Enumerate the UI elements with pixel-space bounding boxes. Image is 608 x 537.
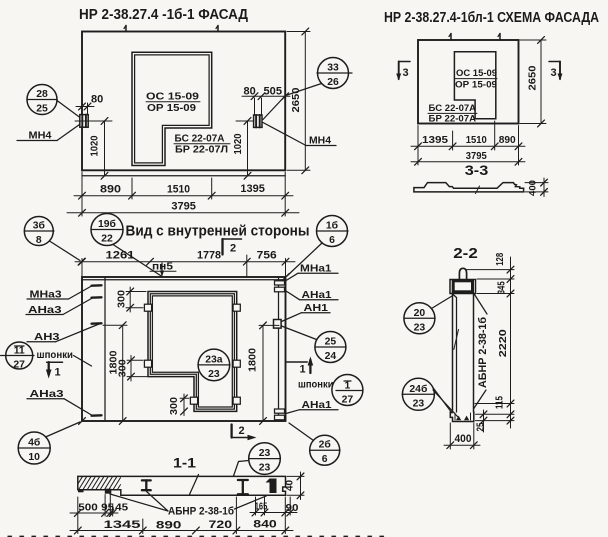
svg-text:890: 890 (100, 184, 121, 196)
svg-text:90: 90 (286, 502, 299, 514)
svg-text:400: 400 (528, 180, 538, 196)
svg-text:АБНР 2-38-1б: АБНР 2-38-1б (477, 317, 489, 388)
svg-text:115: 115 (494, 396, 506, 409)
svg-text:БР 22-07Л: БР 22-07Л (175, 145, 228, 156)
svg-text:1261: 1261 (106, 250, 135, 262)
svg-text:26: 26 (327, 77, 339, 88)
svg-text:840: 840 (253, 519, 277, 531)
svg-text:23: 23 (414, 322, 426, 333)
svg-text:ОР 15-09: ОР 15-09 (147, 103, 196, 114)
svg-text:1510: 1510 (167, 184, 190, 196)
svg-text:23: 23 (259, 448, 271, 459)
svg-text:2-2: 2-2 (453, 246, 478, 262)
svg-text:25: 25 (36, 104, 48, 115)
svg-text:23: 23 (259, 463, 271, 474)
svg-text:300: 300 (168, 397, 180, 415)
svg-text:1395: 1395 (422, 134, 448, 146)
svg-text:11: 11 (14, 346, 25, 357)
svg-text:1020: 1020 (89, 135, 101, 156)
svg-text:27: 27 (342, 395, 354, 406)
svg-text:95: 95 (101, 502, 114, 514)
svg-text:1395: 1395 (240, 183, 265, 195)
svg-text:БС 22-07А: БС 22-07А (175, 134, 225, 145)
svg-text:1: 1 (345, 381, 351, 392)
svg-text:24б: 24б (409, 383, 427, 395)
svg-text:8: 8 (36, 235, 42, 246)
svg-text:3795: 3795 (466, 150, 487, 162)
svg-text:165: 165 (255, 501, 268, 513)
svg-text:3-3: 3-3 (465, 163, 489, 178)
svg-text:2б: 2б (319, 439, 331, 451)
svg-text:22: 22 (101, 234, 113, 245)
svg-text:27: 27 (13, 360, 25, 371)
svg-text:33: 33 (327, 63, 339, 74)
svg-text:НР 2-38.27.4 -1б-1 ФАСАД: НР 2-38.27.4 -1б-1 ФАСАД (79, 7, 249, 23)
svg-text:23: 23 (208, 369, 220, 380)
svg-text:1020: 1020 (232, 133, 244, 154)
svg-text:3: 3 (402, 67, 408, 79)
svg-text:23: 23 (413, 398, 425, 409)
svg-text:1510: 1510 (466, 134, 487, 146)
svg-text:45: 45 (115, 502, 128, 514)
svg-text:128: 128 (494, 253, 506, 266)
svg-text:20: 20 (414, 308, 426, 319)
svg-text:890: 890 (156, 520, 182, 532)
svg-text:4б: 4б (28, 437, 40, 449)
svg-text:400: 400 (455, 433, 472, 445)
svg-text:10: 10 (28, 452, 40, 463)
svg-text:БС 22-07А: БС 22-07А (429, 103, 477, 113)
svg-text:МН4: МН4 (29, 131, 52, 142)
svg-text:1б: 1б (326, 220, 338, 232)
svg-text:БР 22-07А: БР 22-07А (429, 114, 477, 124)
svg-text:1-1: 1-1 (173, 456, 197, 471)
svg-text:шпонки: шпонки (37, 349, 74, 361)
svg-text:500: 500 (78, 502, 98, 514)
svg-text:МН4: МН4 (309, 136, 331, 147)
svg-text:19б: 19б (98, 218, 116, 230)
svg-text:1: 1 (299, 364, 305, 376)
svg-text:24: 24 (325, 351, 337, 362)
svg-text:6: 6 (329, 235, 335, 246)
svg-text:6: 6 (322, 454, 328, 465)
svg-text:1: 1 (54, 367, 60, 379)
svg-text:2650: 2650 (527, 65, 539, 90)
svg-text:3: 3 (550, 67, 556, 79)
svg-text:1800: 1800 (247, 348, 259, 372)
svg-text:2: 2 (230, 243, 236, 255)
svg-text:Вид с внутренней стороны: Вид с внутренней стороны (126, 224, 310, 240)
svg-text:300: 300 (116, 290, 128, 308)
svg-text:шпонки: шпонки (298, 379, 334, 391)
svg-text:2220: 2220 (497, 329, 509, 357)
svg-text:80: 80 (91, 94, 103, 106)
svg-text:890: 890 (499, 134, 516, 146)
svg-text:345: 345 (496, 281, 508, 294)
svg-text:ОС 15-09: ОС 15-09 (146, 92, 199, 103)
svg-text:25: 25 (325, 337, 337, 348)
svg-text:НР 2-38.27.4-1бл-1 СХЕМА ФАСАД: НР 2-38.27.4-1бл-1 СХЕМА ФАСАДА (384, 10, 599, 26)
svg-text:3795: 3795 (171, 201, 196, 213)
svg-text:23а: 23а (205, 355, 223, 366)
svg-text:756: 756 (257, 250, 277, 262)
svg-text:1345: 1345 (104, 519, 141, 531)
svg-text:2: 2 (238, 425, 244, 437)
svg-text:720: 720 (209, 519, 233, 531)
svg-text:АБНР 2-38-1б: АБНР 2-38-1б (168, 506, 234, 518)
svg-text:ОС 15-09: ОС 15-09 (456, 68, 497, 78)
svg-text:28: 28 (36, 89, 48, 100)
svg-text:1800: 1800 (108, 350, 120, 374)
svg-text:1778: 1778 (197, 250, 221, 262)
svg-text:ОР 15-09: ОР 15-09 (455, 80, 497, 90)
svg-text:3б: 3б (33, 220, 45, 232)
svg-text:25: 25 (475, 422, 487, 431)
svg-text:40: 40 (284, 480, 296, 491)
